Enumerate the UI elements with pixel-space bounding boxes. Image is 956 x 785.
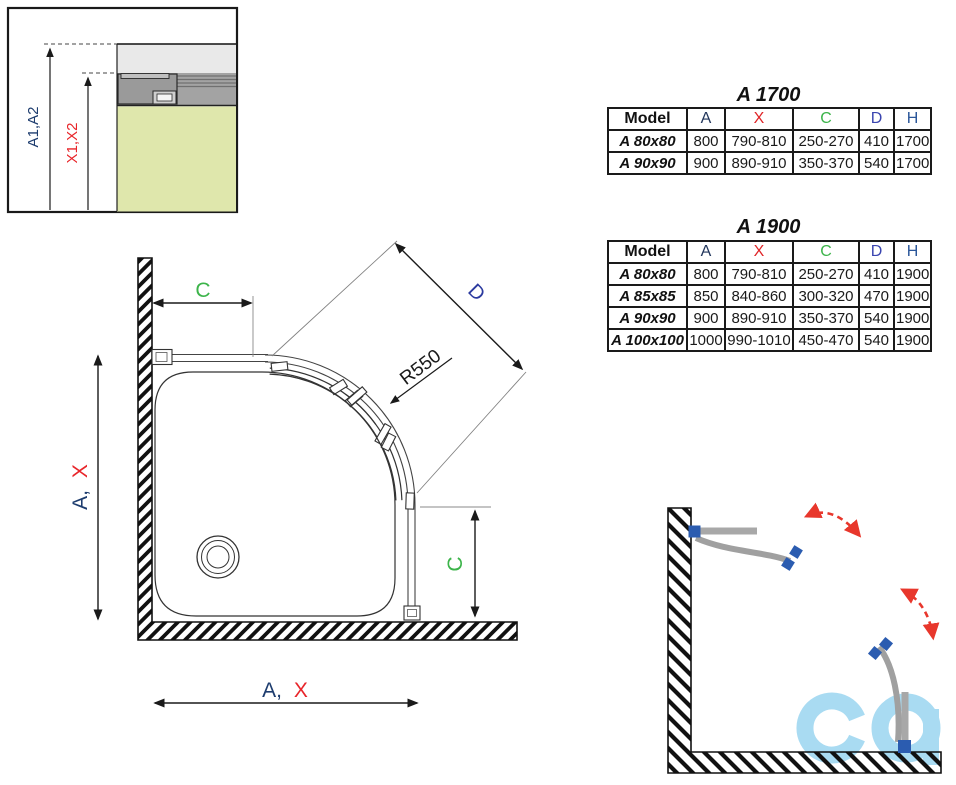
table-header-row: Model A X C D H xyxy=(608,108,931,130)
dim-label-ax-bottom: A, X xyxy=(262,679,308,702)
dim-a-left: A, xyxy=(69,490,92,510)
col-header-a: A xyxy=(687,241,725,263)
cell-c: 250-270 xyxy=(793,263,859,285)
hinge-marker xyxy=(898,740,911,753)
door-rollers xyxy=(271,362,414,509)
cell-a: 900 xyxy=(687,307,725,329)
col-header-x: X xyxy=(725,108,793,130)
cell-h: 1900 xyxy=(894,285,931,307)
col-header-d: D xyxy=(859,241,894,263)
radius-label: R550 xyxy=(396,346,445,390)
col-header-model: Model xyxy=(608,108,687,130)
plan-view-drawing: C D R550 A, X C A, X xyxy=(69,241,526,703)
cell-x: 790-810 xyxy=(725,130,793,152)
cell-d: 540 xyxy=(859,307,894,329)
cell-h: 1700 xyxy=(894,152,931,174)
cell-d: 410 xyxy=(859,263,894,285)
table-title-a1900: A 1900 xyxy=(607,216,930,239)
glass-panel-section xyxy=(117,44,236,73)
shower-tray-outline xyxy=(155,372,395,616)
door-swing-schematic xyxy=(668,508,941,773)
cell-h: 1900 xyxy=(894,263,931,285)
upper-door xyxy=(689,526,803,571)
drain xyxy=(197,536,239,578)
col-header-x: X xyxy=(725,241,793,263)
col-header-a: A xyxy=(687,108,725,130)
cell-c: 300-320 xyxy=(793,285,859,307)
cell-h: 1900 xyxy=(894,307,931,329)
tray-edge-section xyxy=(117,107,236,212)
cell-model: A 80x80 xyxy=(608,263,687,285)
size-table-a1700: Model A X C D H A 80x80 800 790-810 250-… xyxy=(607,107,932,175)
col-header-c: C xyxy=(793,108,859,130)
cell-model: A 100x100 xyxy=(608,329,687,351)
dim-label-ax-left: A, X xyxy=(69,464,92,510)
cell-c: 350-370 xyxy=(793,152,859,174)
table-title-a1700: A 1700 xyxy=(607,84,930,107)
dim-label-d: D xyxy=(463,280,489,306)
walls-hatched xyxy=(138,258,517,640)
cell-x: 890-910 xyxy=(725,152,793,174)
cell-a: 900 xyxy=(687,152,725,174)
cell-x: 890-910 xyxy=(725,307,793,329)
col-header-c: C xyxy=(793,241,859,263)
cell-d: 470 xyxy=(859,285,894,307)
dim-label-c-top: C xyxy=(195,279,210,302)
col-header-d: D xyxy=(859,108,894,130)
cell-model: A 80x80 xyxy=(608,130,687,152)
cell-a: 1000 xyxy=(687,329,725,351)
door-swing-arrow-lower xyxy=(903,590,933,637)
cell-a: 850 xyxy=(687,285,725,307)
cell-a: 800 xyxy=(687,130,725,152)
table-row: A 90x90 900 890-910 350-370 540 1700 xyxy=(608,152,931,174)
col-header-h: H xyxy=(894,241,931,263)
dim-x-bottom: X xyxy=(294,679,308,702)
cell-h: 1900 xyxy=(894,329,931,351)
table-row: A 80x80 800 790-810 250-270 410 1900 xyxy=(608,263,931,285)
profile-section-detail: A1,A2 X1,X2 xyxy=(8,8,237,212)
cell-x: 840-860 xyxy=(725,285,793,307)
cell-c: 250-270 xyxy=(793,130,859,152)
door-swing-arrow-upper xyxy=(807,513,859,535)
cell-d: 540 xyxy=(859,152,894,174)
table-row: A 85x85 850 840-860 300-320 470 1900 xyxy=(608,285,931,307)
size-table-a1900: Model A X C D H A 80x80 800 790-810 250-… xyxy=(607,240,932,352)
table-header-row: Model A X C D H xyxy=(608,241,931,263)
cell-c: 450-470 xyxy=(793,329,859,351)
dim-x-left: X xyxy=(69,464,92,478)
cell-h: 1700 xyxy=(894,130,931,152)
technical-drawing-page: A1,A2 X1,X2 xyxy=(0,0,956,785)
cell-d: 540 xyxy=(859,329,894,351)
cell-model: A 90x90 xyxy=(608,152,687,174)
cell-x: 990-1010 xyxy=(725,329,793,351)
cell-model: A 85x85 xyxy=(608,285,687,307)
table-row: A 90x90 900 890-910 350-370 540 1900 xyxy=(608,307,931,329)
cell-c: 350-370 xyxy=(793,307,859,329)
col-header-model: Model xyxy=(608,241,687,263)
dim-a-bottom: A, xyxy=(262,679,282,702)
dim-label-a1a2: A1,A2 xyxy=(25,107,42,148)
dim-label-c-right: C xyxy=(444,556,467,571)
dim-label-x1x2: X1,X2 xyxy=(64,123,81,164)
cell-model: A 90x90 xyxy=(608,307,687,329)
table-row: A 80x80 800 790-810 250-270 410 1700 xyxy=(608,130,931,152)
cell-d: 410 xyxy=(859,130,894,152)
hinge-marker xyxy=(689,526,701,538)
profile-rail-section xyxy=(117,73,236,106)
cell-x: 790-810 xyxy=(725,263,793,285)
col-header-h: H xyxy=(894,108,931,130)
table-row: A 100x100 1000 990-1010 450-470 540 1900 xyxy=(608,329,931,351)
cell-a: 800 xyxy=(687,263,725,285)
